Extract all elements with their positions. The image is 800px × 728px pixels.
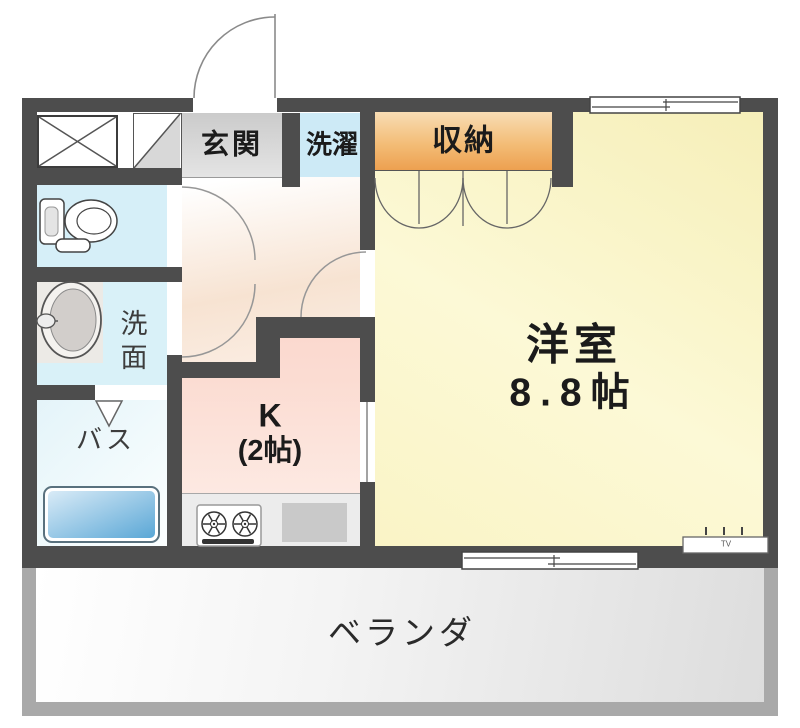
western-room-size: 8.8帖 (509, 373, 638, 416)
kitchen-size: (2帖) (238, 436, 302, 468)
diagonal-shoe-cabinet-icon (134, 114, 180, 168)
tv-marker-label: TV (721, 541, 731, 550)
interior-door-arc-icon (182, 187, 366, 357)
bathtub-icon (44, 487, 159, 542)
closet-doors-icon (375, 171, 551, 228)
cross-box-icon (39, 117, 116, 166)
folding-door-icon (96, 401, 122, 426)
entrance-door-arc-icon (193, 14, 277, 113)
washbasin-icon (37, 282, 101, 358)
western-room-label: 洋室 (526, 322, 622, 369)
sliding-door-icon (462, 552, 638, 569)
veranda-label: ベランダ (328, 615, 476, 651)
bath-label: バス (76, 426, 136, 455)
floor-plan: 玄関 洗濯 収納 洋室 8.8帖 K (2帖) バス 洗面 ベランダ TV (0, 0, 800, 728)
toilet-icon (40, 199, 117, 252)
storage-label: 収納 (432, 125, 496, 158)
kitchen-label: K (258, 398, 281, 433)
laundry-label: 洗濯 (306, 131, 358, 160)
stove-icon (197, 505, 261, 546)
sliding-window-icon (590, 97, 740, 113)
washroom-label: 洗面 (119, 307, 149, 375)
genkan-label: 玄関 (201, 130, 263, 161)
